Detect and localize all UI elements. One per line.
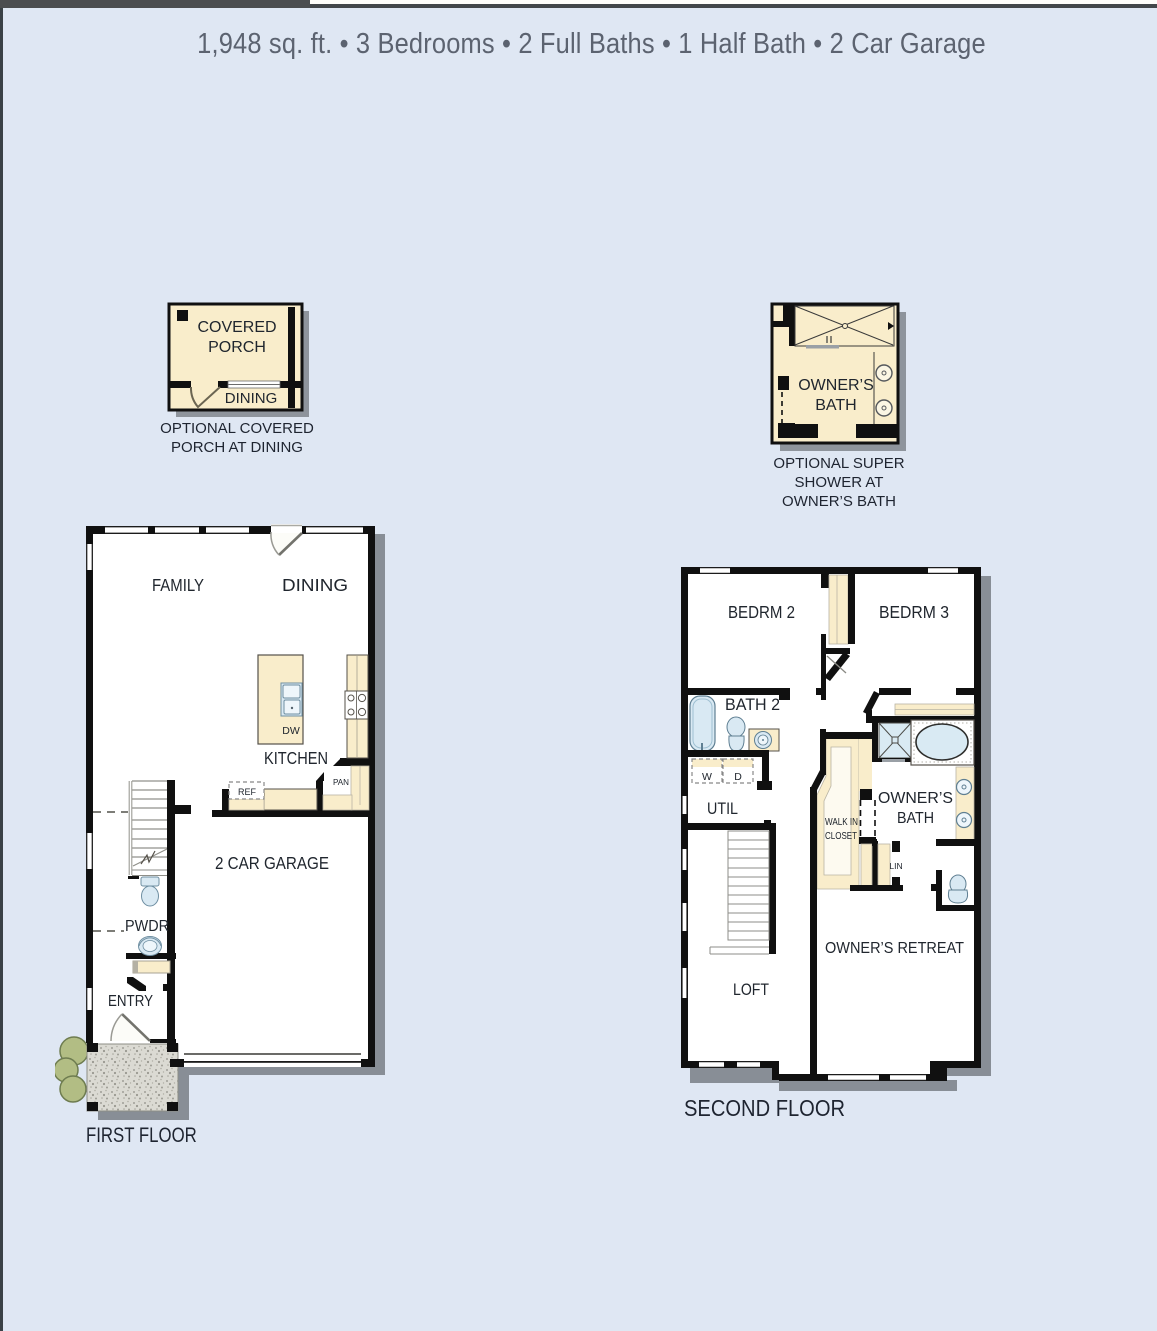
- svg-text:BATH: BATH: [815, 397, 856, 414]
- svg-text:BATH: BATH: [897, 810, 934, 827]
- svg-text:LIN: LIN: [889, 861, 902, 871]
- svg-text:OWNER’S: OWNER’S: [798, 377, 874, 394]
- svg-text:KITCHEN: KITCHEN: [264, 748, 328, 768]
- svg-text:CLOSET: CLOSET: [825, 831, 857, 842]
- svg-text:D: D: [734, 771, 742, 783]
- svg-text:DW: DW: [282, 725, 300, 737]
- svg-text:PWDR: PWDR: [125, 918, 169, 935]
- svg-text:BEDRM 3: BEDRM 3: [879, 602, 949, 622]
- svg-text:OWNER’S RETREAT: OWNER’S RETREAT: [825, 940, 964, 957]
- svg-text:DINING: DINING: [282, 575, 348, 595]
- svg-text:2 CAR GARAGE: 2 CAR GARAGE: [215, 853, 329, 873]
- svg-text:REF: REF: [238, 787, 257, 797]
- svg-text:ENTRY: ENTRY: [108, 993, 153, 1010]
- svg-text:FAMILY: FAMILY: [152, 575, 204, 595]
- svg-text:W: W: [702, 771, 712, 783]
- svg-text:PAN: PAN: [333, 777, 349, 787]
- svg-text:OWNER’S: OWNER’S: [878, 790, 953, 807]
- svg-text:COVERED: COVERED: [197, 319, 276, 336]
- svg-text:BATH 2: BATH 2: [725, 696, 780, 714]
- svg-text:WALK IN: WALK IN: [825, 817, 858, 828]
- svg-text:DINING: DINING: [225, 390, 278, 407]
- svg-text:UTIL: UTIL: [707, 799, 738, 818]
- svg-text:BEDRM 2: BEDRM 2: [728, 602, 795, 622]
- svg-text:LOFT: LOFT: [733, 981, 769, 999]
- svg-text:PORCH: PORCH: [208, 339, 266, 356]
